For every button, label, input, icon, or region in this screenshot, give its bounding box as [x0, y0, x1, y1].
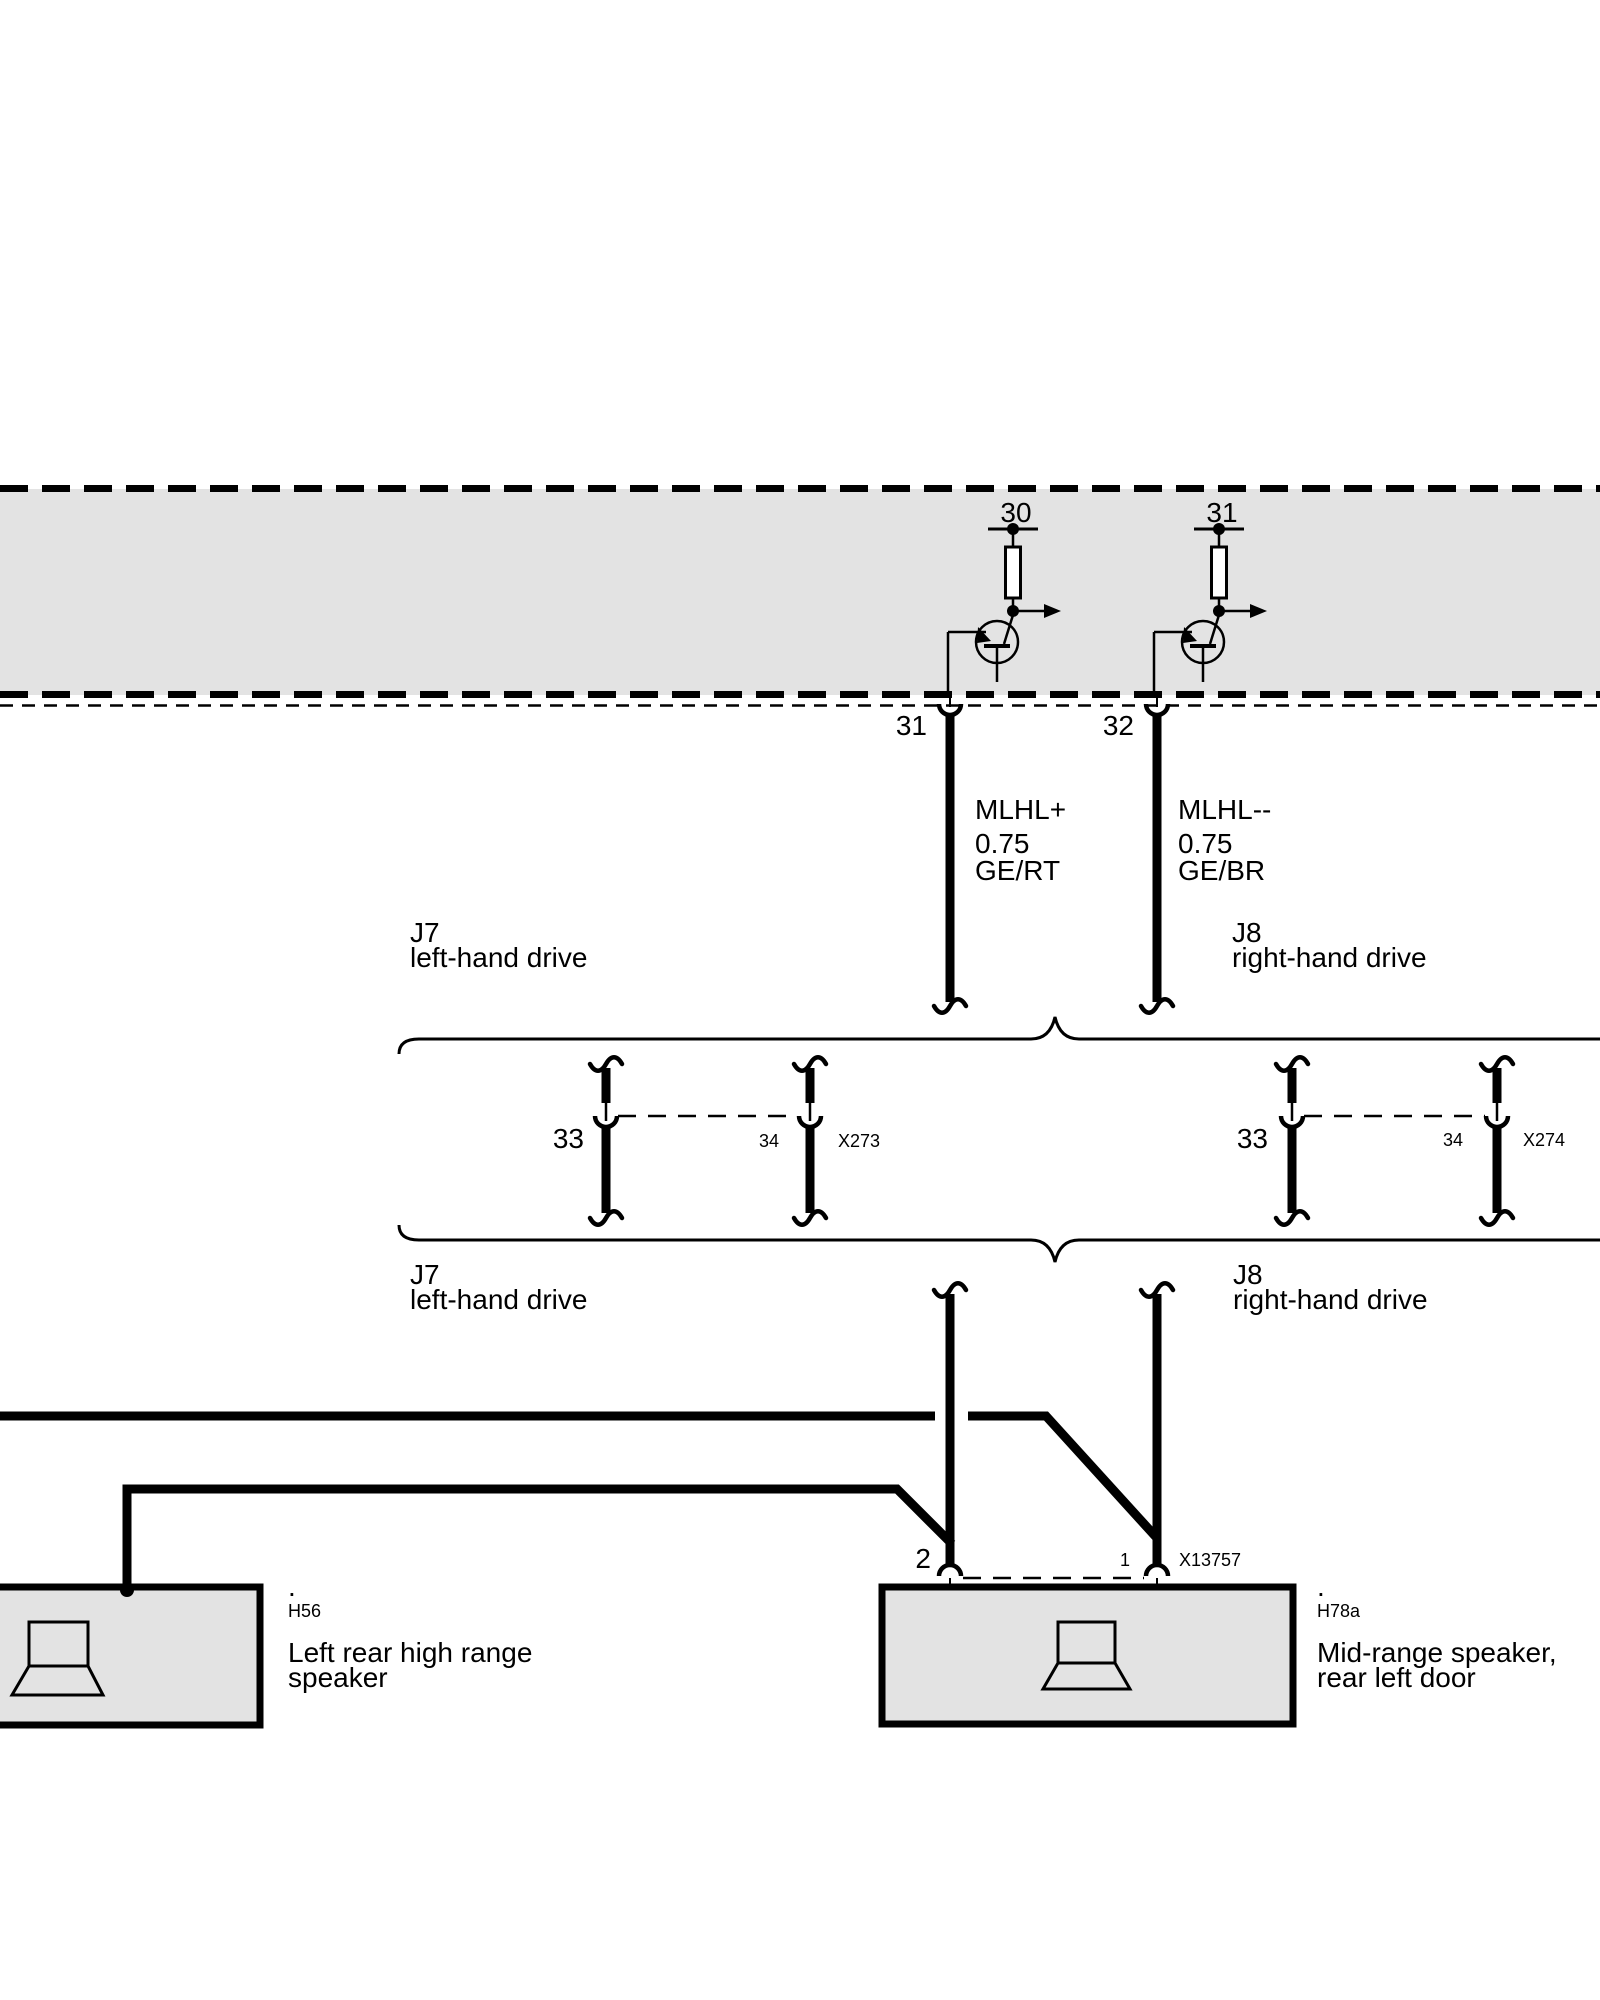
branch-wire-upper: [0, 1416, 1156, 1537]
x13757-code-label: X13757: [1179, 1550, 1241, 1570]
pin-number-31: 31: [896, 710, 927, 741]
connector-x274-pin33: [1276, 1057, 1308, 1225]
wire-label-right: MLHL-- 0.75 GE/BR: [1178, 794, 1271, 886]
variant-label-j8-upper: J8 right-hand drive: [1232, 917, 1427, 973]
x274-code-label: X274: [1523, 1130, 1565, 1150]
wire-break-icon: [590, 1211, 622, 1225]
x273-pin-main-label: 33: [553, 1123, 584, 1154]
component-box: [882, 1587, 1293, 1724]
connector-x273-pin33: [590, 1057, 622, 1225]
resistor-icon: [1212, 547, 1227, 598]
component-h78a: . H78a Mid-range speaker, rear left door: [882, 1571, 1557, 1724]
variant-label-j7-lower: J7 left-hand drive: [410, 1259, 587, 1315]
x273-code-label: X273: [838, 1131, 880, 1151]
component-marker: .: [1317, 1571, 1325, 1602]
module-pin-out-right: [1141, 695, 1173, 1013]
wire-signal: MLHL--: [1178, 794, 1271, 825]
module-internal-pin-label: 31: [1206, 497, 1237, 528]
module-pin-out-left: [934, 695, 966, 1013]
component-id: H56: [288, 1601, 321, 1621]
amplifier-module: [0, 489, 1600, 706]
brace-bottom: [399, 1225, 1600, 1262]
connector-socket-icon: [939, 1565, 961, 1576]
connector-x273-pin34: [794, 1057, 826, 1225]
x13757-pin-main-label: 2: [915, 1543, 931, 1574]
wire-color-code: GE/RT: [975, 855, 1060, 886]
amplifier-module-body: [0, 489, 1600, 695]
junction-dot: [120, 1583, 134, 1597]
connector-x274-pin34: [1481, 1057, 1513, 1225]
wire-signal: MLHL+: [975, 794, 1066, 825]
component-h56: . H56 Left rear high range speaker: [0, 1571, 532, 1725]
wiring-diagram-page: 30 31: [0, 0, 1600, 2000]
variant-description: right-hand drive: [1232, 942, 1427, 973]
wire-break-icon: [794, 1211, 826, 1225]
brace-top: [399, 1017, 1600, 1054]
variant-description: right-hand drive: [1233, 1284, 1428, 1315]
wire-to-speaker-pin1: [1141, 1283, 1173, 1588]
module-internal-pin-label: 30: [1000, 497, 1031, 528]
x13757-pin-inline-label: 1: [1120, 1550, 1130, 1570]
wiring-diagram: 30 31: [0, 0, 1600, 2000]
wire-label-left: MLHL+ 0.75 GE/RT: [975, 794, 1066, 886]
x274-pin-inline-label: 34: [1443, 1130, 1463, 1150]
x274-pin-main-label: 33: [1237, 1123, 1268, 1154]
pin-number-32: 32: [1103, 710, 1134, 741]
component-name-line2: rear left door: [1317, 1662, 1476, 1693]
variant-label-j8-lower: J8 right-hand drive: [1233, 1259, 1428, 1315]
component-name-line2: speaker: [288, 1662, 388, 1693]
component-marker: .: [288, 1571, 296, 1602]
connector-socket-icon: [1146, 1565, 1168, 1576]
x273-pin-inline-label: 34: [759, 1131, 779, 1151]
branch-wire-upper-diagonal: [968, 1416, 1156, 1537]
variant-description: left-hand drive: [410, 942, 587, 973]
branch-wire-lower: [120, 1489, 952, 1597]
component-id: H78a: [1317, 1601, 1361, 1621]
component-box: [0, 1587, 260, 1725]
resistor-icon: [1006, 547, 1021, 598]
wire-break-icon: [1276, 1211, 1308, 1225]
wire-color-code: GE/BR: [1178, 855, 1265, 886]
variant-description: left-hand drive: [410, 1284, 587, 1315]
wire-break-icon: [1481, 1211, 1513, 1225]
variant-label-j7-upper: J7 left-hand drive: [410, 917, 587, 973]
